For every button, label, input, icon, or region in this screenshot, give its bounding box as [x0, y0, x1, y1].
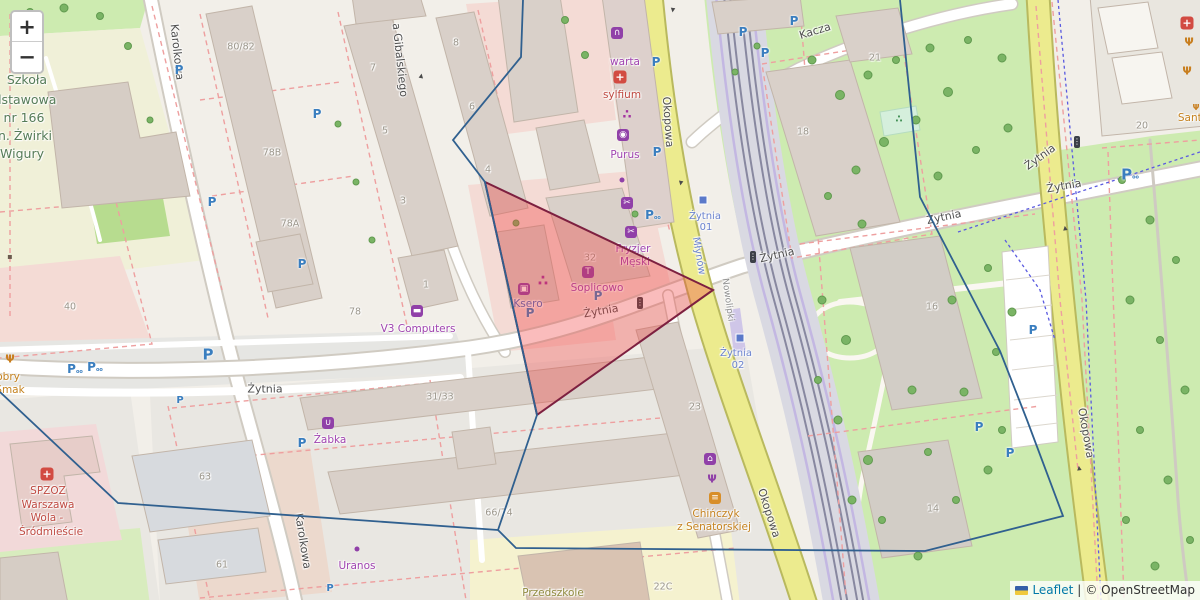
leaflet-link[interactable]: Leaflet [1032, 583, 1073, 597]
osm-attribution[interactable]: © OpenStreetMap [1085, 583, 1195, 597]
boundary-line [0, 392, 498, 530]
zoom-out-button[interactable]: − [12, 42, 42, 72]
map-container[interactable]: ŻytniaŻytniaŻytniaŻytniaŻytniaŻytniaKacz… [0, 0, 1200, 600]
attribution: Leaflet | © OpenStreetMap [1010, 581, 1200, 600]
zoom-control: + − [10, 10, 44, 74]
zoom-in-button[interactable]: + [12, 12, 42, 42]
ukraine-flag-icon [1015, 586, 1028, 595]
red-triangle-overlay[interactable] [485, 182, 713, 415]
overlay-layer [0, 0, 1200, 600]
attribution-separator: | [1077, 583, 1081, 597]
